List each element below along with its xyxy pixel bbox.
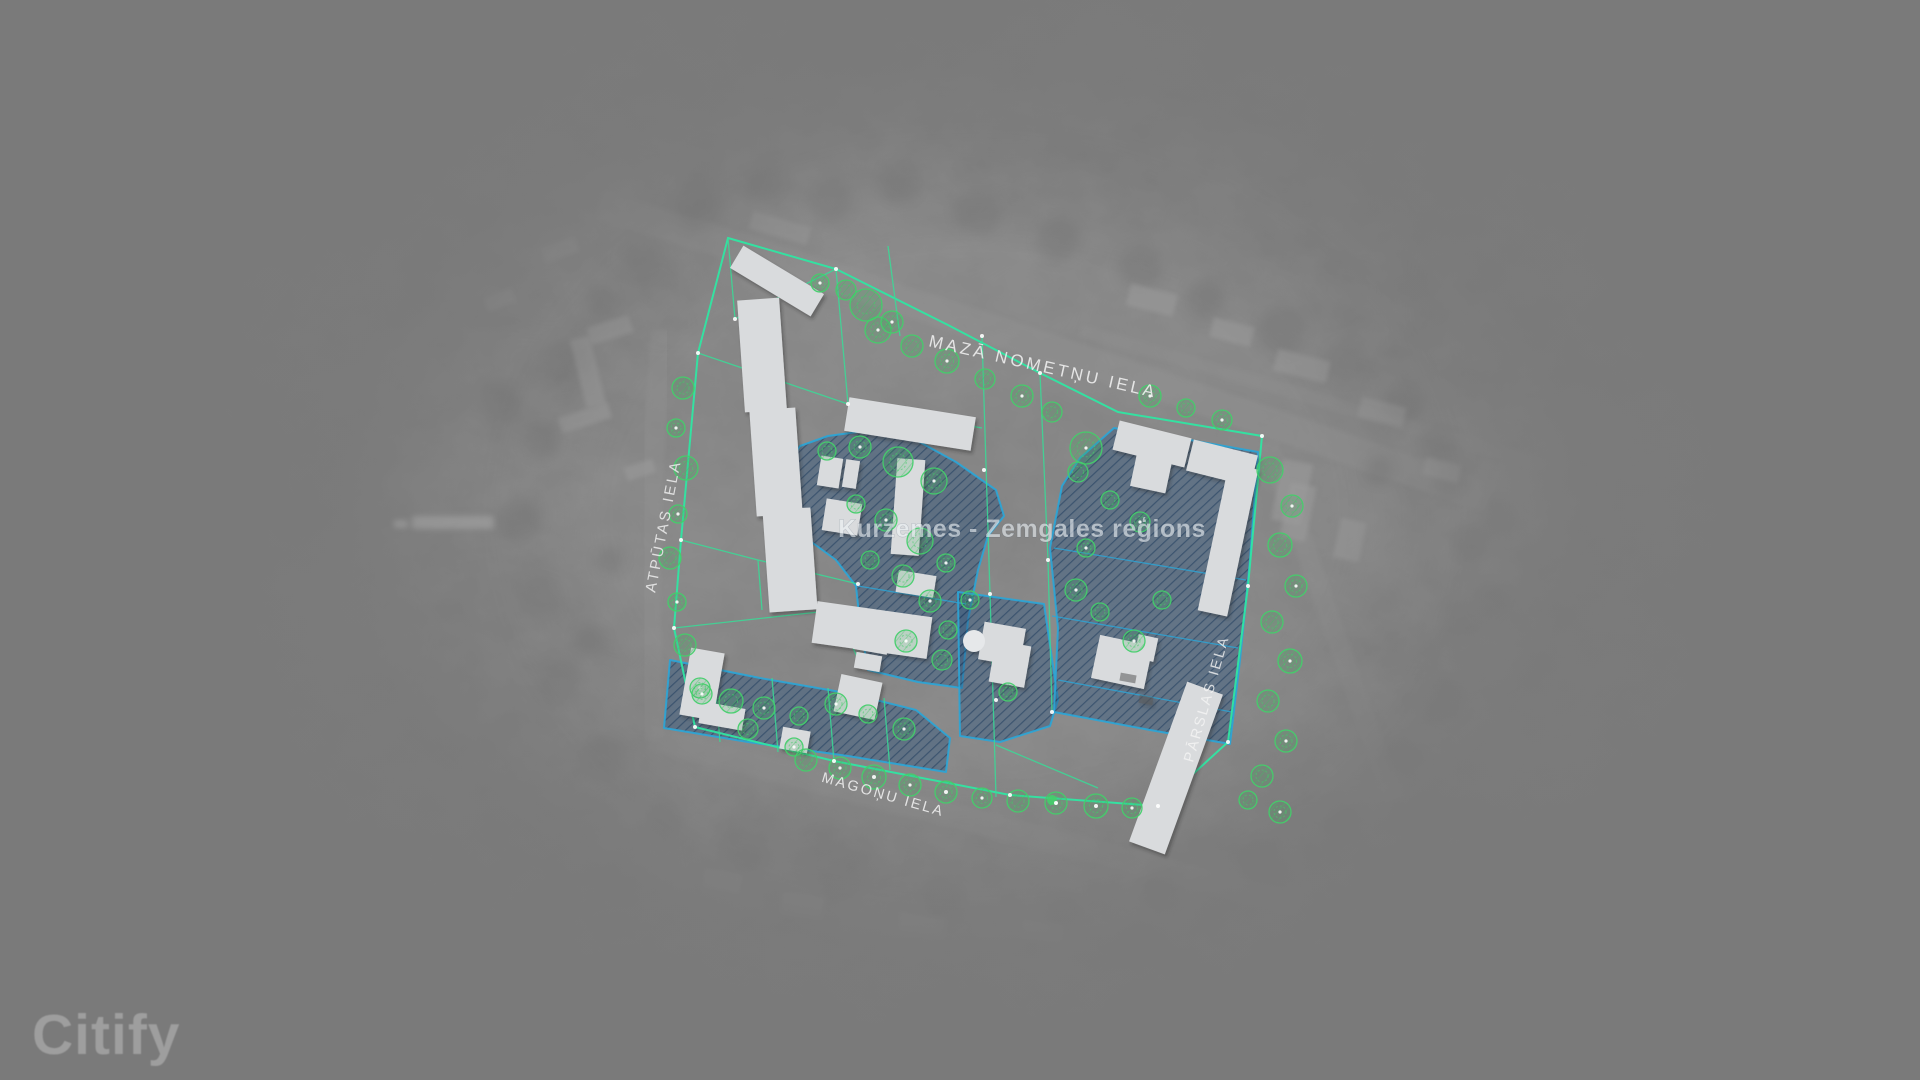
street-label-maza-nometnu-iela: MAZĀ NOMETŅU IELA	[927, 331, 1159, 401]
tree-marker	[1011, 385, 1033, 407]
tree-marker	[859, 705, 877, 723]
tree-marker	[892, 565, 914, 587]
tree-marker	[1257, 457, 1283, 483]
tree-marker	[975, 369, 995, 389]
building-footprint[interactable]	[989, 640, 1032, 688]
tree-marker	[939, 621, 957, 639]
tree-marker	[972, 788, 992, 808]
tree-marker	[790, 707, 808, 725]
building-footprint[interactable]	[817, 455, 843, 488]
tree-marker	[738, 719, 758, 739]
tree-marker	[1101, 491, 1119, 509]
building-footprint[interactable]	[963, 630, 985, 652]
tree-marker	[961, 591, 979, 609]
tree-marker	[1153, 591, 1171, 609]
tree-marker	[692, 684, 712, 704]
tree-marker	[753, 697, 775, 719]
tree-marker	[1257, 690, 1279, 712]
tree-marker	[667, 419, 685, 437]
tree-marker	[1042, 402, 1062, 422]
tree-marker	[847, 495, 865, 513]
tree-marker	[818, 442, 836, 460]
tree-marker	[883, 447, 913, 477]
tree-marker	[1275, 730, 1297, 752]
tree-marker	[1278, 649, 1302, 673]
tree-marker	[1212, 410, 1232, 430]
tree-marker	[1122, 798, 1142, 818]
tree-marker	[1068, 462, 1088, 482]
tree-marker	[674, 634, 696, 656]
tree-marker	[1091, 603, 1109, 621]
tree-marker	[1065, 579, 1087, 601]
tree-marker	[811, 274, 829, 292]
parcel-line	[758, 560, 762, 610]
tree-marker	[999, 683, 1017, 701]
tree-marker	[825, 693, 847, 715]
tree-marker	[1261, 611, 1283, 633]
tree-marker	[1269, 801, 1291, 823]
tree-marker	[921, 468, 947, 494]
building-footprint[interactable]	[737, 298, 787, 413]
tree-marker	[1285, 575, 1307, 597]
site-plan-layer: MAZĀ NOMETŅU IELA ATPŪTAS IELA MAGOŅU IE…	[0, 0, 1920, 1080]
tree-marker	[932, 650, 952, 670]
tree-marker	[1281, 495, 1303, 517]
tree-marker	[1251, 765, 1273, 787]
parcel-line	[996, 745, 1098, 788]
region-label: Kurzemes - Zemgales reģions	[838, 515, 1206, 543]
tree-marker	[836, 280, 856, 300]
tree-marker	[901, 335, 923, 357]
tree-marker	[919, 590, 941, 612]
tree-marker	[1177, 399, 1195, 417]
building-footprint[interactable]	[749, 408, 802, 517]
citify-watermark: Citify	[32, 1002, 181, 1068]
tree-marker	[861, 551, 879, 569]
tree-marker	[672, 377, 694, 399]
tree-marker	[795, 749, 817, 771]
tree-marker	[937, 554, 955, 572]
tree-marker	[893, 718, 915, 740]
tree-marker	[1239, 791, 1257, 809]
map-canvas[interactable]: MAZĀ NOMETŅU IELA ATPŪTAS IELA MAGOŅU IE…	[0, 0, 1920, 1080]
tree-marker	[719, 689, 743, 713]
tree-marker	[849, 436, 871, 458]
tree-marker	[881, 311, 903, 333]
tree-marker	[668, 593, 686, 611]
building-footprint[interactable]	[763, 507, 818, 612]
tree-marker	[1123, 630, 1145, 652]
tree-marker	[1268, 533, 1292, 557]
parcel-line	[674, 610, 836, 628]
faint-background-label	[392, 510, 512, 536]
tree-marker	[1070, 432, 1102, 464]
tree-marker	[895, 630, 917, 652]
